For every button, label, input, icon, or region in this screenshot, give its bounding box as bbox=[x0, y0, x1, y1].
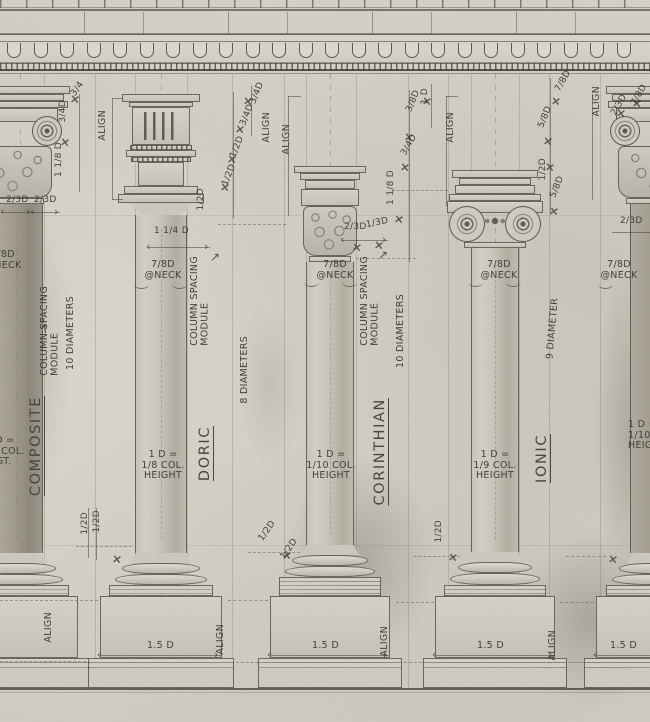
label-right-neck: 7/8D @NECK bbox=[596, 260, 642, 281]
arrowhead-left: ‹ bbox=[593, 648, 597, 661]
dimension-line bbox=[112, 98, 123, 99]
dim-label: 1/2D bbox=[434, 520, 444, 543]
composite-base-slab bbox=[0, 658, 90, 688]
dimension-line bbox=[288, 96, 289, 216]
label-right-height-rule: 1 D = 1/10 COL. HEIGHT bbox=[628, 420, 650, 452]
ionic-apophyge bbox=[465, 552, 525, 562]
construction-line bbox=[95, 74, 96, 688]
arrowhead-left: ‹ bbox=[146, 240, 150, 253]
modillion bbox=[431, 43, 445, 58]
dimension-line bbox=[446, 96, 458, 97]
dashed-guide bbox=[0, 600, 98, 601]
cornice-line bbox=[0, 9, 650, 11]
composite-capital-tier bbox=[0, 94, 64, 101]
ionic-volute-scroll-left bbox=[449, 206, 485, 242]
modillion bbox=[219, 43, 233, 58]
dashed-guide bbox=[392, 190, 448, 191]
dim-label: 1/2D bbox=[538, 158, 548, 181]
dimension-line bbox=[288, 96, 301, 97]
architrave-line bbox=[0, 73, 650, 74]
dim-label: 1/3D bbox=[365, 216, 389, 231]
ionic-torus bbox=[450, 573, 540, 585]
dashed-guide bbox=[404, 662, 422, 663]
modillion bbox=[484, 43, 498, 58]
ionic-base-molding bbox=[444, 585, 546, 596]
arrowhead-left: ‹ bbox=[267, 648, 271, 661]
dashed-guide bbox=[218, 224, 286, 225]
composite-plinth bbox=[0, 596, 78, 658]
ionic-shaft bbox=[471, 248, 519, 552]
ionic-capital-tier bbox=[459, 178, 531, 185]
x-mark bbox=[607, 551, 619, 566]
corinthian-abacus-tier bbox=[300, 173, 360, 180]
dimension-line bbox=[271, 655, 389, 656]
composite-torus bbox=[0, 563, 56, 574]
label-composite-diameters: 10 DIAMETERS bbox=[66, 296, 77, 370]
leader-swoop bbox=[134, 280, 149, 289]
ground-line bbox=[0, 688, 650, 690]
ground-line-shadow bbox=[0, 692, 650, 693]
dim-label: 2/3D bbox=[6, 195, 29, 205]
dim-label: 2/3D bbox=[620, 216, 643, 226]
doric-capital-flare bbox=[128, 203, 194, 215]
dim-label: 1/2D bbox=[220, 163, 238, 188]
dim-label: 3/4D bbox=[248, 81, 266, 106]
dashed-guide bbox=[560, 602, 594, 603]
label-ionic-diameters: 9 DIAMETER bbox=[545, 298, 561, 360]
label-doric-name: DORIC bbox=[197, 426, 213, 481]
arrowhead-left: ‹ bbox=[97, 648, 101, 661]
modillion bbox=[113, 43, 127, 58]
modillion bbox=[34, 43, 48, 58]
architectural-drawing: ‹ › ‹ ›‹ › ‹ › ‹ › ‹ › ‹ › ‹ ↑ → → COMPO… bbox=[0, 0, 650, 722]
modillion bbox=[140, 43, 154, 58]
cornice-molding bbox=[0, 34, 650, 42]
label-composite-module: COLUMN SPACING MODULE bbox=[40, 286, 61, 376]
x-mark bbox=[111, 551, 123, 566]
label-doric-base-width: 1.5 D bbox=[147, 641, 174, 652]
corinthian-torus bbox=[285, 566, 375, 577]
doric-base-molding bbox=[109, 585, 213, 596]
composite-apophyge bbox=[0, 553, 48, 563]
dim-label: 1 1/8 D bbox=[386, 170, 396, 205]
arrowhead-left: ‹ bbox=[0, 205, 4, 218]
dashed-guide bbox=[568, 662, 584, 663]
dashed-guide bbox=[236, 662, 258, 663]
dim-label: 1/2D bbox=[196, 188, 206, 211]
leader-swoop bbox=[172, 280, 187, 289]
label-ionic-base-width: 1.5 D bbox=[477, 641, 504, 652]
dashed-guide bbox=[228, 600, 268, 601]
dashed-guide bbox=[0, 661, 86, 662]
dim-label: 1/2D bbox=[80, 512, 90, 535]
label-corinthian-diameters: 10 DIAMETERS bbox=[396, 294, 407, 368]
corinthian-base-molding bbox=[279, 577, 381, 596]
ionic-base-slab bbox=[423, 658, 567, 688]
doric-abacus bbox=[122, 94, 200, 102]
corinthian-capital-block bbox=[301, 189, 359, 206]
dimension-line bbox=[148, 247, 210, 248]
label-ionic-height-rule: 1 D = 1/9 COL. HEIGHT bbox=[468, 450, 522, 482]
align-note: ALIGN bbox=[216, 624, 227, 655]
dentil-strip bbox=[0, 63, 650, 71]
label-corinthian-module: COLUMN SPACING MODULE bbox=[360, 256, 381, 346]
dashed-guide bbox=[566, 556, 606, 557]
modillion bbox=[7, 43, 21, 58]
modillion bbox=[537, 43, 551, 58]
doric-torus bbox=[115, 574, 207, 585]
modillion bbox=[166, 43, 180, 58]
label-composite-height-rule: 1 D = 1/10 COL. HGT. bbox=[0, 436, 30, 468]
align-note: ALIGN bbox=[282, 124, 293, 155]
label-ionic-neck: 7/8D @NECK bbox=[476, 260, 522, 281]
label-composite-neck: 7/8D @NECK bbox=[0, 250, 28, 271]
composite-abacus bbox=[0, 86, 70, 94]
ionic-volute-scroll-right bbox=[505, 206, 541, 242]
dashed-guide bbox=[76, 546, 132, 547]
dimension-line bbox=[612, 232, 650, 233]
ionic-capital-tier bbox=[455, 185, 535, 194]
leader-swoop bbox=[598, 280, 613, 289]
composite-acanthus-bell bbox=[0, 146, 52, 198]
label-doric-module: COLUMN SPACING MODULE bbox=[190, 256, 211, 346]
doric-apophyge bbox=[130, 553, 192, 563]
dimension-line bbox=[79, 94, 80, 192]
modillion bbox=[458, 43, 472, 58]
doric-echinus bbox=[124, 186, 198, 194]
x-mark bbox=[548, 203, 560, 218]
ionic-abacus bbox=[449, 194, 541, 201]
dimension-line bbox=[409, 90, 410, 262]
dim-label: 1 1/4 D bbox=[154, 226, 189, 236]
composite-torus bbox=[0, 574, 63, 585]
dim-label: 2/3D bbox=[344, 222, 367, 232]
frieze-fascia bbox=[0, 12, 650, 34]
modillion bbox=[87, 43, 101, 58]
arrowhead-right: › bbox=[382, 233, 386, 246]
composite-base-molding bbox=[0, 585, 69, 596]
doric-base-slab bbox=[88, 658, 234, 688]
modillion-row bbox=[0, 43, 650, 63]
align-note: ALIGN bbox=[548, 630, 559, 661]
x-mark bbox=[399, 159, 411, 174]
modillion bbox=[325, 43, 339, 58]
dim-label: 1/2D bbox=[92, 510, 102, 533]
dim-label: 2/3D bbox=[34, 195, 57, 205]
arrowhead-mid: ›‹ bbox=[26, 205, 35, 218]
label-corinthian-base-width: 1.5 D bbox=[312, 641, 339, 652]
align-note: ALIGN bbox=[592, 86, 603, 117]
dim-label: 1 D bbox=[420, 88, 430, 104]
align-note: ALIGN bbox=[262, 112, 273, 143]
right-base-molding bbox=[606, 585, 650, 596]
corinthian-base-slab bbox=[258, 658, 402, 688]
modillion bbox=[60, 43, 74, 58]
label-doric-neck: 7/8D @NECK bbox=[140, 260, 186, 281]
dimension-line bbox=[597, 655, 650, 656]
doric-echinus bbox=[118, 194, 204, 203]
cornice-tick-strip bbox=[0, 0, 650, 8]
doric-triglyph-block bbox=[132, 107, 190, 145]
modillion bbox=[378, 43, 392, 58]
x-mark bbox=[550, 93, 562, 108]
dashed-guide bbox=[396, 602, 434, 603]
arrowhead-left: ‹ bbox=[432, 648, 436, 661]
right-torus bbox=[612, 574, 650, 585]
x-mark bbox=[447, 549, 459, 564]
modillion bbox=[511, 43, 525, 58]
dim-label: 5/8D bbox=[536, 105, 554, 130]
label-doric-diameters: 8 DIAMETERS bbox=[240, 336, 251, 404]
label-right-base-width: 1.5 D bbox=[610, 641, 637, 652]
arrowhead-right: › bbox=[204, 240, 208, 253]
align-note: ALIGN bbox=[446, 112, 457, 143]
doric-necking bbox=[138, 162, 184, 186]
dim-label: 3/4D bbox=[399, 133, 419, 158]
corinthian-apophyge bbox=[300, 545, 360, 555]
label-corinthian-height-rule: 1 D = 1/10 COL. HEIGHT bbox=[302, 450, 360, 482]
arrowhead-right: › bbox=[54, 205, 58, 218]
x-mark bbox=[351, 239, 363, 254]
dim-label: 1 1/8 D bbox=[54, 142, 64, 177]
modillion bbox=[590, 43, 604, 58]
corinthian-torus bbox=[292, 555, 368, 566]
label-corinthian-neck: 7/8D @NECK bbox=[312, 260, 358, 281]
modillion bbox=[352, 43, 366, 58]
right-apophyge bbox=[627, 553, 650, 563]
dimension-line bbox=[436, 655, 554, 656]
dimension-line bbox=[112, 199, 123, 200]
align-note: ALIGN bbox=[98, 110, 109, 141]
label-ionic-name: IONIC bbox=[534, 434, 550, 483]
doric-taenia bbox=[126, 150, 196, 157]
align-note: ALIGN bbox=[44, 612, 55, 643]
dim-label: 1/2D bbox=[257, 519, 278, 543]
dimension-line bbox=[101, 655, 221, 656]
right-torus bbox=[619, 563, 650, 574]
dim-label: 3/4D bbox=[58, 100, 68, 123]
label-doric-height-rule: 1 D = 1/8 COL. HEIGHT bbox=[136, 450, 190, 482]
modillion bbox=[272, 43, 286, 58]
modillion bbox=[246, 43, 260, 58]
x-mark bbox=[393, 211, 405, 226]
dimension-line bbox=[112, 98, 113, 200]
corinthian-abacus bbox=[294, 166, 366, 173]
modillion bbox=[405, 43, 419, 58]
doric-torus bbox=[122, 563, 200, 574]
modillion bbox=[617, 43, 631, 58]
modillion bbox=[193, 43, 207, 58]
ionic-egg-and-dart bbox=[484, 212, 506, 232]
corinthian-shaft bbox=[306, 262, 354, 545]
dim-label: 5/8D bbox=[548, 175, 566, 200]
align-note: ALIGN bbox=[380, 626, 391, 657]
right-shaft bbox=[630, 204, 650, 553]
right-acanthus-bell bbox=[618, 146, 650, 198]
ionic-capital-slab bbox=[452, 170, 538, 178]
ionic-torus bbox=[458, 562, 532, 573]
x-mark bbox=[542, 133, 554, 148]
corinthian-abacus-tier bbox=[305, 180, 355, 189]
modillion bbox=[564, 43, 578, 58]
label-corinthian-name: CORINTHIAN bbox=[372, 398, 388, 506]
right-base-slab bbox=[584, 658, 650, 688]
arrowhead-left: ‹ bbox=[340, 233, 344, 246]
label-composite-name: COMPOSITE bbox=[28, 396, 44, 496]
modillion bbox=[299, 43, 313, 58]
